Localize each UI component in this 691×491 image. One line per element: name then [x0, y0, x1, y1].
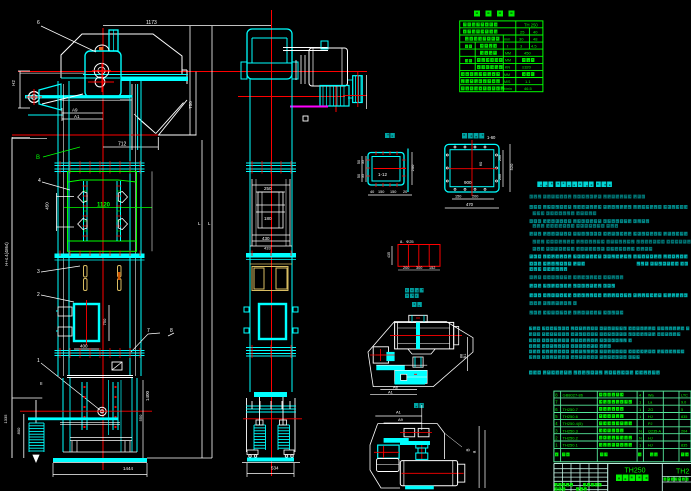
- svg-text:300: 300: [416, 266, 422, 270]
- svg-text:520: 520: [509, 163, 514, 170]
- svg-text:A8: A8: [393, 385, 399, 390]
- svg-text:48: 48: [533, 37, 538, 42]
- svg-text:470: 470: [466, 202, 474, 207]
- svg-text:TH250.6: TH250.6: [563, 414, 579, 419]
- svg-text:Wa: Wa: [648, 394, 654, 398]
- svg-text:60: 60: [478, 161, 483, 166]
- svg-text:40: 40: [533, 30, 538, 35]
- svg-text:HJ: HJ: [648, 444, 653, 448]
- svg-text:30: 30: [519, 37, 524, 42]
- svg-text:534: 534: [271, 466, 279, 471]
- svg-text:PJ: PJ: [648, 422, 653, 426]
- svg-text:4: 4: [38, 178, 41, 184]
- svg-text:435: 435: [387, 252, 391, 258]
- svg-text:A1: A1: [74, 114, 80, 119]
- svg-text:TH250.7: TH250.7: [563, 407, 579, 412]
- svg-text:204: 204: [681, 429, 687, 433]
- svg-text:20: 20: [403, 190, 407, 194]
- svg-text:9.0: 9.0: [681, 401, 686, 405]
- svg-text:1335: 1335: [3, 414, 8, 424]
- svg-text:MM: MM: [505, 52, 511, 56]
- svg-text:430: 430: [262, 236, 270, 241]
- svg-text:B: B: [36, 155, 40, 161]
- svg-text:4.5: 4.5: [531, 44, 537, 49]
- svg-text:400: 400: [80, 344, 88, 349]
- svg-text:1444: 1444: [123, 466, 134, 471]
- svg-text:46.5: 46.5: [524, 86, 533, 91]
- svg-text:8: 8: [170, 328, 173, 334]
- svg-text:H+4.4(4864): H+4.4(4864): [4, 242, 9, 266]
- svg-text:200: 200: [498, 174, 502, 180]
- svg-text:TH 250: TH 250: [524, 23, 538, 28]
- svg-text:≥320: ≥320: [522, 65, 532, 70]
- svg-text:25: 25: [520, 30, 525, 35]
- svg-text:450: 450: [524, 51, 531, 56]
- svg-text:750: 750: [188, 101, 193, 109]
- svg-text:1400: 1400: [145, 390, 150, 401]
- svg-text:1-60: 1-60: [487, 135, 496, 140]
- svg-text:835: 835: [681, 444, 687, 448]
- svg-text:TH250: TH250: [624, 468, 645, 475]
- svg-text:MM: MM: [504, 73, 510, 77]
- svg-text:800: 800: [16, 427, 21, 434]
- svg-text:TH250.3: TH250.3: [563, 428, 579, 433]
- svg-text:3: 3: [37, 269, 40, 275]
- svg-text:2: 2: [37, 292, 40, 298]
- svg-text:200: 200: [498, 155, 502, 161]
- svg-text:6: 6: [37, 20, 40, 26]
- svg-text:550: 550: [138, 414, 143, 421]
- svg-text:200: 200: [410, 164, 415, 171]
- svg-text:152: 152: [429, 266, 435, 270]
- svg-text:A9: A9: [72, 108, 78, 113]
- svg-text:B: B: [466, 448, 471, 451]
- svg-text:150: 150: [390, 190, 396, 194]
- svg-text:N: N: [639, 436, 642, 441]
- svg-text:1120: 1120: [97, 203, 111, 209]
- svg-text:II: II: [40, 381, 43, 386]
- svg-text:40: 40: [370, 190, 374, 194]
- svg-text:900: 900: [464, 180, 472, 185]
- svg-text:5: 5: [681, 408, 683, 412]
- svg-text:250: 250: [264, 186, 272, 191]
- svg-text:180: 180: [264, 216, 272, 221]
- svg-text:35: 35: [361, 174, 365, 178]
- svg-text:TH250.1: TH250.1: [563, 443, 579, 448]
- svg-text:A1: A1: [388, 390, 394, 395]
- svg-text:712: 712: [118, 142, 127, 148]
- svg-text:TH250.4(5): TH250.4(5): [563, 421, 584, 426]
- svg-text:35: 35: [361, 160, 365, 164]
- svg-text:150: 150: [378, 190, 384, 194]
- svg-text:N: N: [639, 428, 642, 433]
- svg-text:7: 7: [147, 328, 150, 334]
- svg-text:B1: B1: [463, 354, 467, 359]
- svg-text:TH250.2: TH250.2: [563, 436, 579, 441]
- svg-text:GB8027-86: GB8027-86: [563, 393, 584, 398]
- svg-text:TH2: TH2: [676, 469, 689, 476]
- svg-text:1.1: 1.1: [525, 79, 531, 84]
- svg-text:A1: A1: [396, 410, 402, 415]
- svg-text:200: 200: [472, 195, 478, 199]
- svg-text:H2: H2: [11, 80, 16, 86]
- svg-text:150: 150: [455, 195, 461, 199]
- svg-text:HJ: HJ: [648, 437, 653, 441]
- svg-text:1-12: 1-12: [378, 172, 388, 177]
- svg-text:200: 200: [403, 266, 409, 270]
- svg-text:r/min: r/min: [504, 87, 512, 91]
- svg-text:LTC: LTC: [681, 394, 688, 398]
- svg-text:M/S: M/S: [504, 80, 511, 84]
- svg-text:mm: mm: [504, 38, 510, 42]
- svg-text:Q235-A: Q235-A: [648, 429, 662, 433]
- svg-text:MM: MM: [505, 59, 511, 63]
- svg-text:1173: 1173: [146, 20, 157, 26]
- svg-text:ZG: ZG: [648, 408, 653, 412]
- svg-text:KN: KN: [505, 66, 510, 70]
- svg-text:433: 433: [264, 246, 271, 251]
- svg-text:A9: A9: [398, 417, 404, 422]
- svg-text:450: 450: [45, 202, 50, 210]
- svg-text:750: 750: [102, 318, 107, 325]
- svg-text:HJ: HJ: [648, 415, 653, 419]
- svg-text:835: 835: [681, 415, 687, 419]
- svg-text:Φ25: Φ25: [406, 239, 414, 244]
- svg-text:1: 1: [37, 358, 40, 364]
